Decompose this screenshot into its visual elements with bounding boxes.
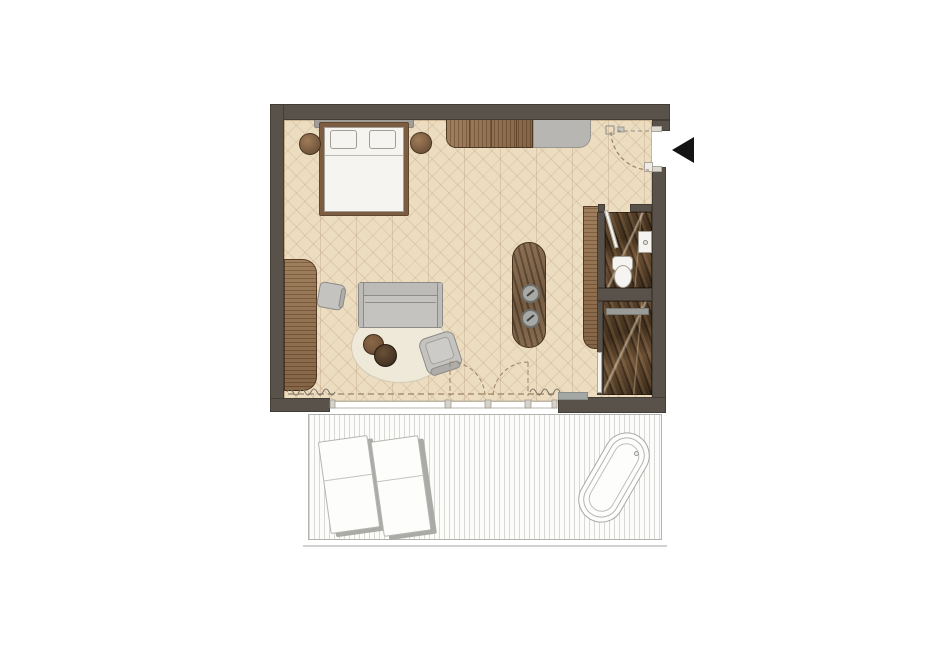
bar-stool-bottom <box>521 309 540 328</box>
wc-wall-left <box>597 212 605 288</box>
wall-top <box>270 104 670 120</box>
floor-plan <box>0 0 934 660</box>
sofa-back <box>359 283 442 296</box>
pillow-left <box>330 130 357 149</box>
bath-wall-divider <box>597 288 652 301</box>
nightstand-left <box>299 133 321 155</box>
washbasin <box>638 231 652 253</box>
sideboard-divider <box>469 118 470 148</box>
armchair-seat <box>424 336 455 366</box>
desk-chair <box>316 281 346 311</box>
entry-door-leaf <box>644 162 653 172</box>
shower-glass-door <box>597 352 602 393</box>
sideboard-divider <box>516 118 517 148</box>
sofa <box>358 282 443 328</box>
lounger-fold-line <box>377 475 423 482</box>
stool-detail <box>526 289 534 296</box>
entry-jamb-top <box>651 126 662 132</box>
shower-floor <box>603 301 652 395</box>
bar-stool-top <box>521 284 540 303</box>
sideboard-divider <box>491 118 492 148</box>
shower-bench <box>606 308 649 315</box>
pillow-right <box>369 130 396 149</box>
sideboard <box>446 118 533 148</box>
toilet-bowl <box>614 265 632 288</box>
washbasin-drain <box>643 240 648 245</box>
wall-bottom-left <box>270 398 330 412</box>
wall-right <box>652 167 666 398</box>
nightstand-right <box>410 132 432 154</box>
stool-detail <box>526 314 534 321</box>
entrance-arrow-icon <box>672 137 694 163</box>
wall-left <box>270 104 284 412</box>
upholstered-bench <box>533 118 591 148</box>
bath-wall-top-right <box>630 204 652 212</box>
lounger-fold-line <box>324 474 372 482</box>
sofa-arm-left <box>359 283 364 327</box>
sofa-seat-line <box>365 302 436 303</box>
terrace-threshold <box>558 392 588 400</box>
sofa-arm-right <box>437 283 442 327</box>
coffee-table-large <box>374 344 397 367</box>
desk <box>284 259 317 391</box>
